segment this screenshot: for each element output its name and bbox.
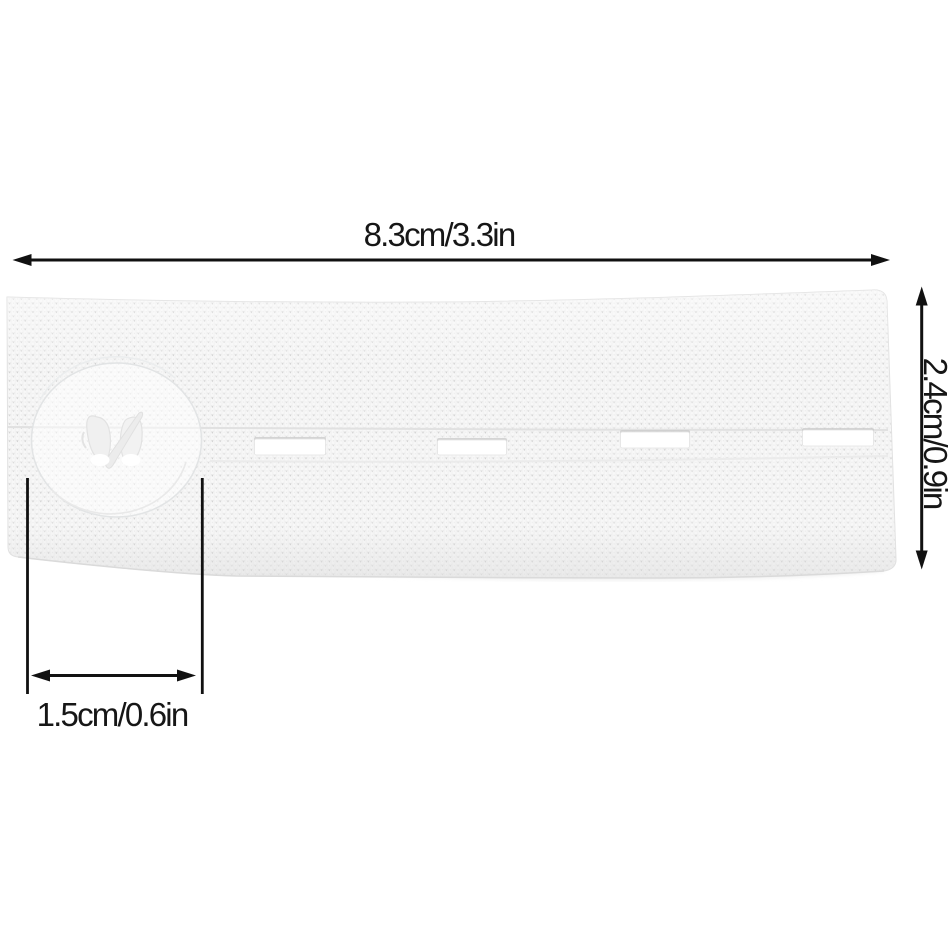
svg-text:2.4cm/0.9in: 2.4cm/0.9in bbox=[917, 358, 949, 509]
svg-text:1.5cm/0.6in: 1.5cm/0.6in bbox=[37, 696, 188, 733]
svg-text:8.3cm/3.3in: 8.3cm/3.3in bbox=[364, 216, 515, 253]
